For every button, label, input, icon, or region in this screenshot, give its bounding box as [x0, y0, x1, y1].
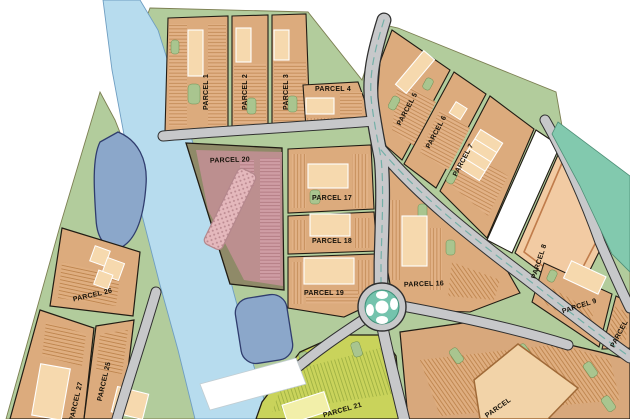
parcel-2-label: PARCEL 2 [242, 74, 249, 110]
parcel-2[interactable] [232, 15, 268, 128]
parcel-4-building [306, 98, 334, 114]
roundabout[interactable] [358, 283, 406, 331]
site-plan-map: PARCEL 1 PARCEL 2 PARCEL 3 PARCEL 4 PARC… [0, 0, 630, 419]
parcel-17-label: PARCEL 17 [312, 195, 352, 202]
parcel-4-label: PARCEL 4 [315, 86, 351, 93]
parcel-1-building [188, 30, 203, 76]
parcel-16-label: PARCEL 16 [404, 280, 444, 288]
parcel-19-label: PARCEL 19 [304, 290, 344, 297]
parcel-17[interactable] [288, 145, 374, 213]
pond-south [233, 292, 295, 365]
parcel-20-label: PARCEL 20 [210, 156, 250, 164]
parcel-1[interactable] [165, 16, 228, 132]
parcel-17-building [308, 164, 348, 188]
parcel-3-parking [274, 62, 306, 122]
parcel-18-building [310, 214, 350, 236]
parcel-1-label: PARCEL 1 [203, 74, 210, 110]
parcel-16-building [402, 216, 427, 266]
parcel-2-parking [234, 64, 266, 124]
parcel-18[interactable] [288, 212, 377, 254]
parcel-3-label: PARCEL 3 [283, 74, 290, 110]
parcel-19-building [304, 258, 354, 284]
parcel-3-building [274, 30, 289, 60]
parcel-2-building [236, 28, 251, 62]
parcel-18-label: PARCEL 18 [312, 238, 352, 245]
